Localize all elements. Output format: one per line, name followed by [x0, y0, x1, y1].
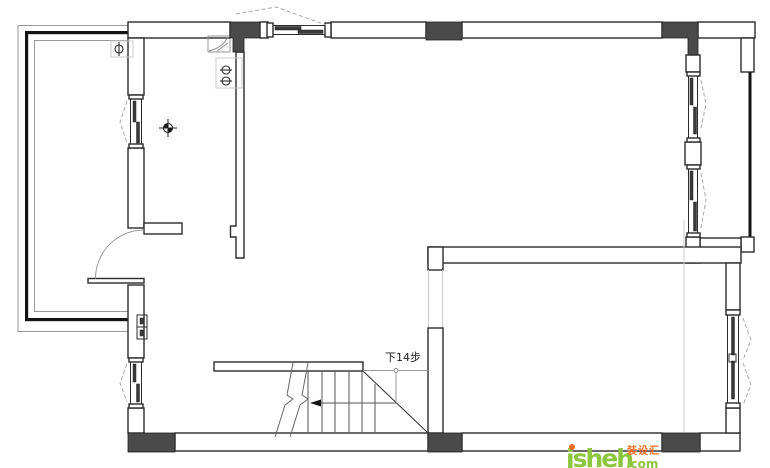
switch-symbol [115, 42, 123, 56]
window-opening-dashes [120, 364, 127, 402]
window-jamb [687, 165, 700, 169]
floor-plan-page: 下14步 jsheh 装设汇 .com [0, 0, 770, 468]
right-wall-pier [686, 55, 700, 72]
balcony-inner-edge [35, 41, 130, 312]
leader-node [394, 369, 398, 373]
window-opening-dashes [701, 80, 706, 128]
watermark-chinese-name: 装设汇 [627, 447, 660, 457]
watermark-site-name[interactable]: jsheh [566, 446, 632, 468]
window-sash [137, 122, 140, 143]
window-sash [298, 30, 323, 34]
right-bay-glazing-line [749, 72, 752, 239]
window-bedroom-right [726, 310, 751, 408]
door-leaf [88, 279, 144, 284]
window-left-upper [120, 95, 143, 148]
window-jamb [129, 144, 143, 148]
column [426, 22, 462, 40]
watermark-dot-icon [569, 444, 575, 450]
watermark-logo[interactable]: jsheh 装设汇 .com [660, 434, 770, 468]
bottom-wall-segment [175, 433, 428, 451]
window-sash [133, 364, 136, 382]
staircase: 下14步 [214, 351, 428, 437]
window-jamb [129, 404, 143, 408]
stair-cut-diagonal [363, 371, 427, 432]
column [230, 22, 260, 52]
window-left-lower [120, 358, 143, 408]
column [128, 433, 175, 452]
window-opening-dashes [120, 101, 127, 143]
window-jamb [129, 95, 143, 99]
window-sash [694, 202, 697, 231]
right-bay-wall [741, 38, 754, 72]
left-wall-pier [128, 148, 144, 228]
floor-plan-drawing: 下14步 [0, 0, 770, 468]
window-jamb [267, 23, 273, 37]
interior-wall-stub [144, 223, 182, 234]
window-sash [732, 361, 735, 399]
room-right-wall-pier [726, 408, 740, 433]
window-jamb [726, 310, 740, 315]
window-jamb [687, 138, 700, 142]
stair-handrail [214, 362, 363, 371]
window-sash [133, 101, 136, 122]
balcony-door [88, 230, 144, 283]
room-left-wall-pier [428, 247, 443, 270]
stair-direction-arrow [310, 400, 321, 407]
window-sash [694, 107, 697, 134]
window-sash [690, 78, 693, 105]
window-sash [137, 384, 140, 402]
switch-symbol [220, 77, 232, 85]
balcony-glazing-line [25, 31, 138, 321]
column [428, 433, 462, 452]
switch-symbol [220, 66, 232, 74]
window-opening-dashes [743, 363, 751, 405]
window-jamb [687, 72, 700, 76]
structural-columns [128, 22, 700, 452]
window-opening-dashes [701, 173, 706, 228]
window-sash [732, 317, 735, 355]
stair-break-line [290, 363, 308, 437]
right-wall-pier [685, 142, 701, 165]
left-wall-pier [128, 38, 144, 95]
left-balcony [18, 26, 138, 332]
top-wall-segment [698, 22, 755, 38]
top-wall-segment [462, 22, 662, 38]
left-wall-pier [128, 408, 144, 433]
middle-partition-wall [428, 247, 741, 263]
room-left-wall-pier [428, 328, 443, 433]
window-jamb [687, 233, 700, 237]
window-jamb [726, 403, 740, 408]
column [662, 22, 698, 55]
watermark-site-tld[interactable]: .com [626, 458, 658, 468]
room-right-wall-pier [726, 263, 740, 310]
interior-walls [144, 36, 741, 433]
window-sash [275, 27, 301, 31]
window-right-lower [687, 165, 706, 237]
stair-direction-label: 下14步 [385, 351, 421, 364]
window-jamb [129, 358, 143, 362]
stair-break-line [275, 363, 293, 437]
window-opening-dashes [743, 318, 751, 360]
door-swing-arc [96, 230, 145, 279]
right-bay-wall [741, 237, 754, 252]
datum-point-symbol [159, 119, 177, 137]
stair-annotation: 下14步 [310, 351, 428, 407]
window-sash [690, 171, 693, 200]
top-wall-segment [331, 22, 426, 38]
window-right-upper [687, 72, 706, 142]
